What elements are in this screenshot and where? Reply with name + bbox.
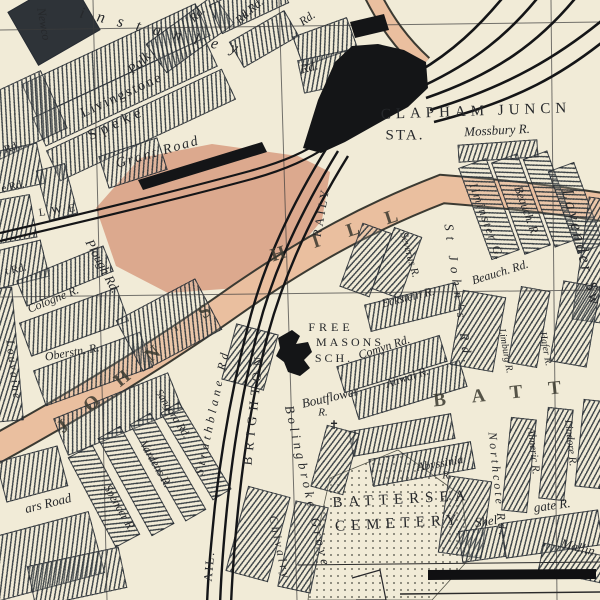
label-abyssinia-r: R. xyxy=(442,471,451,482)
label-church-cross: ✝ xyxy=(329,419,339,431)
grid-lines xyxy=(0,0,600,600)
label-station: STA. xyxy=(386,129,425,144)
label-freemasons-1: FREE xyxy=(308,321,353,333)
label-boutflower-r: R. xyxy=(318,408,327,419)
scale-bar xyxy=(298,562,600,594)
freemasons-school-building xyxy=(276,330,312,376)
map-canvas: instanleyRd.Rd.k Rd.Rd.Rd.NewcoLivingsto… xyxy=(0,0,600,600)
label-freemasons-3: SCH. xyxy=(315,352,353,364)
railway-tracks xyxy=(0,0,600,600)
rail-layer xyxy=(0,0,600,600)
label-rail-bottom: AIL. xyxy=(202,550,217,582)
label-mossbury-road: Mossbury R. xyxy=(464,122,530,138)
road-island xyxy=(352,570,386,600)
station-annex xyxy=(350,14,389,38)
